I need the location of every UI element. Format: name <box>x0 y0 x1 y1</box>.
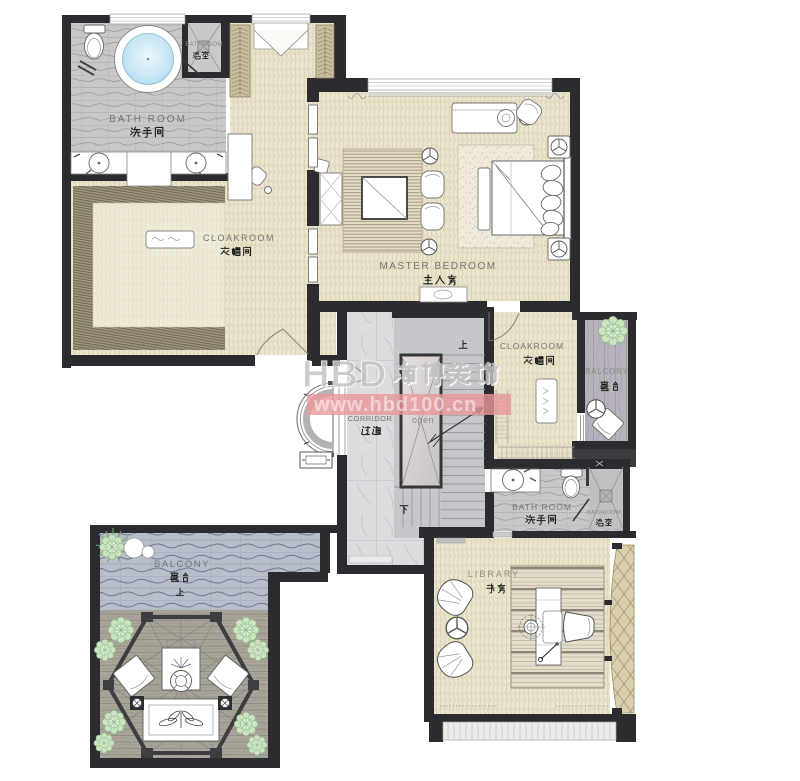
svg-text:BATHROOM: BATHROOM <box>587 510 621 516</box>
svg-text:open: open <box>412 415 434 425</box>
svg-text:www.hbd100.cn: www.hbd100.cn <box>313 394 477 416</box>
svg-text:MASTER BEDROOM: MASTER BEDROOM <box>379 261 496 272</box>
svg-text:CLOAKROOM: CLOAKROOM <box>203 233 275 243</box>
svg-text:HBD: HBD <box>302 354 387 396</box>
svg-text:BALCONY: BALCONY <box>154 559 210 570</box>
svg-text:BATHROOM: BATHROOM <box>185 41 223 48</box>
svg-text:BATH ROOM: BATH ROOM <box>109 114 187 125</box>
svg-text:CLOAKROOM: CLOAKROOM <box>500 341 564 351</box>
svg-text:BALCONY: BALCONY <box>585 367 629 376</box>
svg-text:BATH ROOM: BATH ROOM <box>512 502 572 512</box>
svg-text:LIBRARY: LIBRARY <box>468 569 520 579</box>
